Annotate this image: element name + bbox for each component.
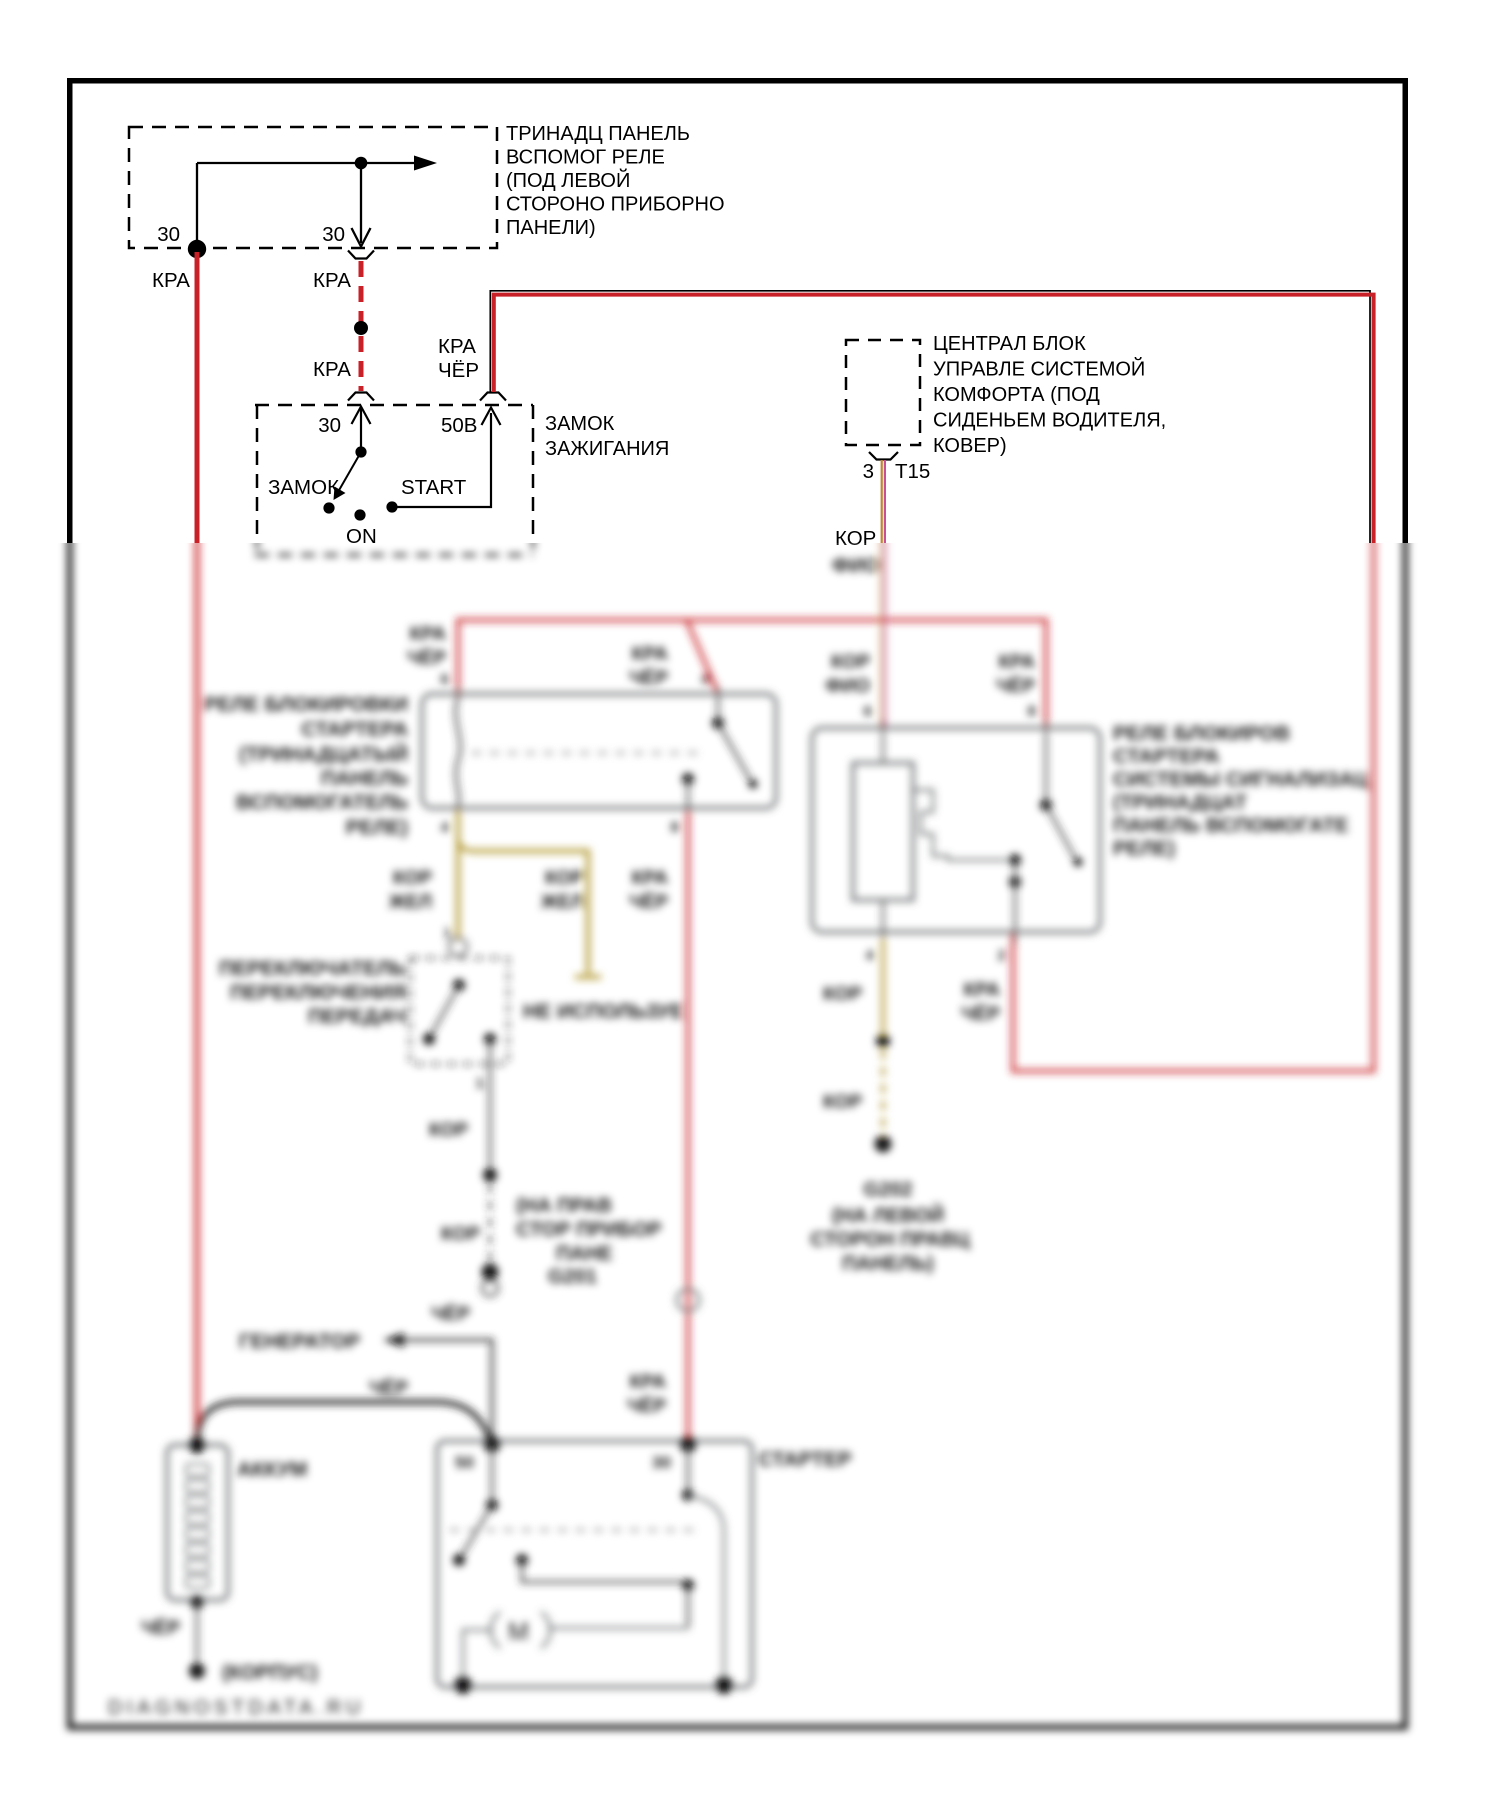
svg-text:КОВЕР): КОВЕР) [933,435,1007,457]
svg-text:(ПОД ЛЕВОЙ: (ПОД ЛЕВОЙ [506,168,630,192]
svg-text:ТРИНАДЦ ПАНЕЛЬ: ТРИНАДЦ ПАНЕЛЬ [506,123,690,145]
svg-text:30: 30 [157,223,180,246]
svg-text:УПРАВЛЕ СИСТЕМОЙ: УПРАВЛЕ СИСТЕМОЙ [933,357,1145,381]
svg-text:50В: 50В [441,414,477,437]
svg-text:ЗАМОК: ЗАМОК [268,476,339,499]
svg-text:ВСПОМОГ РЕЛЕ: ВСПОМОГ РЕЛЕ [506,147,665,169]
svg-text:СТОРОНО ПРИБОРНО: СТОРОНО ПРИБОРНО [506,194,725,216]
svg-text:КРА: КРА [152,269,190,292]
svg-text:ЗАЖИГАНИЯ: ЗАЖИГАНИЯ [545,438,669,460]
svg-text:30: 30 [322,223,345,246]
svg-text:30: 30 [318,414,341,437]
svg-text:ЗАМОК: ЗАМОК [545,413,615,435]
svg-text:КРА: КРА [438,335,476,358]
svg-text:КРА: КРА [313,358,351,381]
svg-text:ПАНЕЛИ): ПАНЕЛИ) [506,217,596,239]
svg-text:T15: T15 [895,460,930,483]
svg-text:КОМФОРТА (ПОД: КОМФОРТА (ПОД [933,384,1100,406]
svg-text:СИДЕНЬЕМ ВОДИТЕЛЯ,: СИДЕНЬЕМ ВОДИТЕЛЯ, [933,410,1166,432]
svg-text:3: 3 [863,460,874,483]
svg-text:START: START [401,476,467,499]
svg-text:КРА: КРА [313,269,351,292]
svg-text:ЧЁР: ЧЁР [438,359,479,382]
svg-text:ЦЕНТРАЛ БЛОК: ЦЕНТРАЛ БЛОК [933,333,1086,355]
